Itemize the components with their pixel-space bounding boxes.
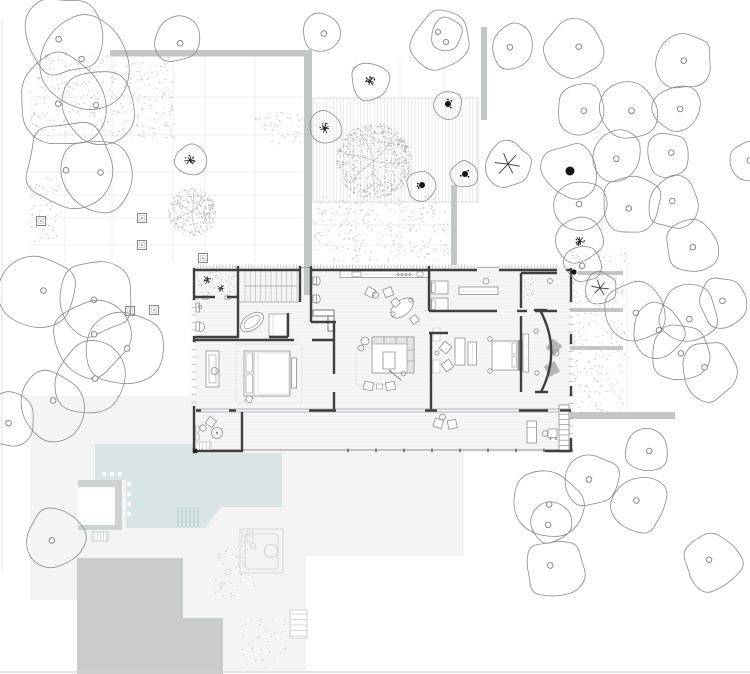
tree-ring: [667, 219, 719, 271]
tree-ring: [554, 182, 607, 230]
tree-ring: [653, 325, 710, 380]
tree-ring: [0, 392, 33, 446]
tree-palm: [174, 144, 207, 175]
tree-palm: [556, 217, 604, 263]
tree-ring: [22, 52, 107, 144]
tree-ring: [40, 15, 129, 110]
planter: [138, 241, 147, 250]
tree-ring: [493, 23, 533, 69]
tree-ring: [652, 86, 701, 131]
site-plan-svg: [0, 0, 750, 674]
tree-palm: [310, 110, 342, 143]
planter: [199, 254, 208, 263]
tree-ring: [659, 284, 718, 341]
tree-ring: [648, 133, 688, 177]
tree-ring: [656, 34, 711, 88]
tree-ring: [86, 312, 163, 383]
site-plan-figure: [0, 0, 750, 674]
tree-palm: [352, 63, 390, 101]
tree-ring: [683, 343, 737, 403]
tree-dot: [407, 171, 436, 201]
tree-ring: [604, 176, 661, 232]
tree-dot: [434, 92, 462, 120]
tree-ring: [599, 82, 657, 139]
tree-ring: [60, 262, 131, 338]
tree-ring: [544, 18, 604, 78]
tree-asterisk: [485, 140, 531, 187]
tree-ring: [559, 83, 604, 135]
tree-ring: [684, 533, 743, 592]
planters: [37, 214, 208, 316]
tree-ring: [634, 302, 685, 358]
tree-ring: [304, 13, 341, 51]
tree-ring: [649, 175, 698, 228]
tree-ring: [625, 428, 667, 470]
tree-ring: [527, 542, 585, 596]
tree-ring: [611, 477, 667, 533]
planter: [150, 306, 159, 315]
tree-double: [410, 10, 469, 70]
tree-dot: [450, 161, 478, 187]
tree-ring: [730, 141, 750, 180]
tree-ring: [531, 502, 572, 543]
tree-ring: [699, 278, 746, 328]
tree-asterisk: [585, 271, 615, 304]
planter: [138, 214, 147, 223]
planter: [37, 217, 46, 226]
tree-ring: [565, 455, 619, 506]
tree-blackdot: [541, 144, 597, 200]
